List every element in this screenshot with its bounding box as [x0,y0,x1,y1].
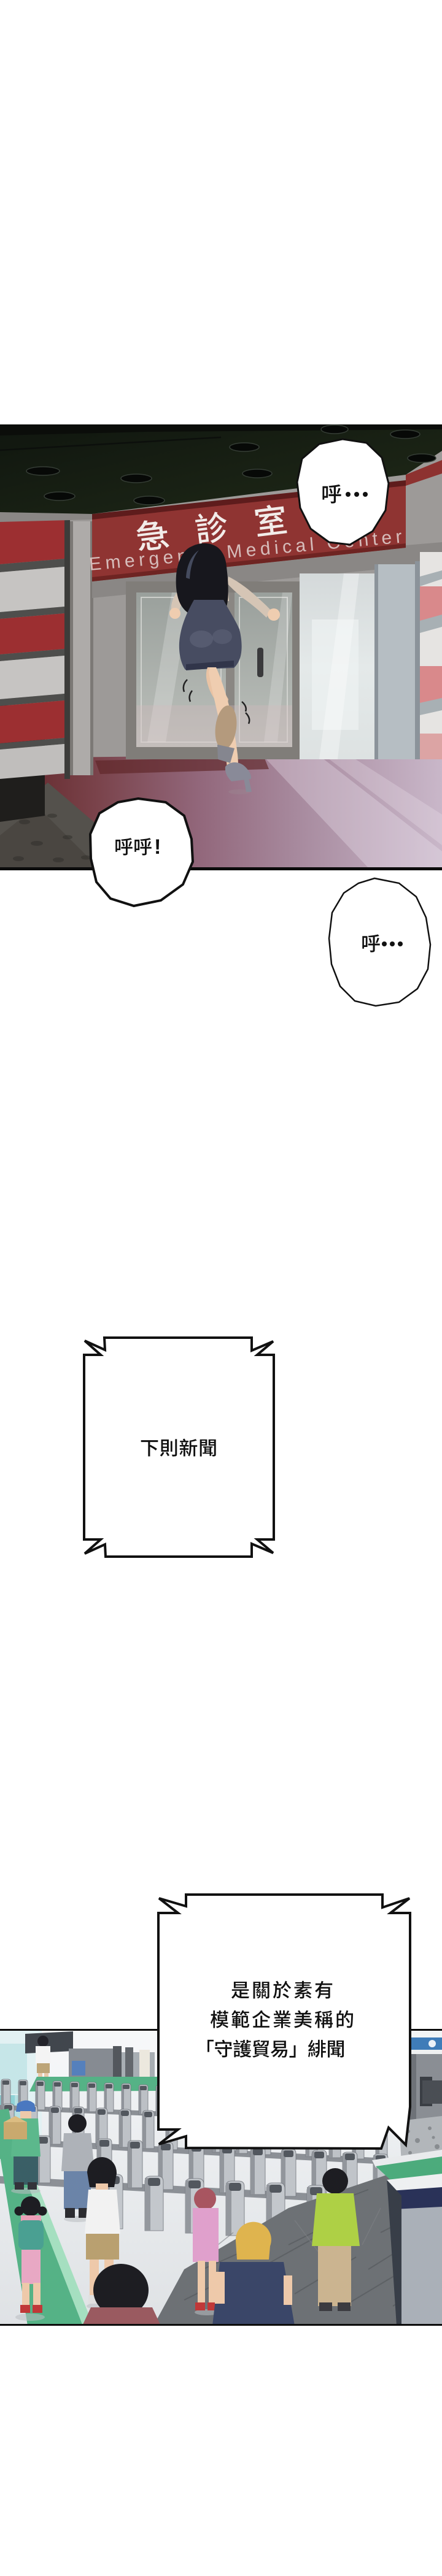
svg-text:!: ! [154,835,161,859]
